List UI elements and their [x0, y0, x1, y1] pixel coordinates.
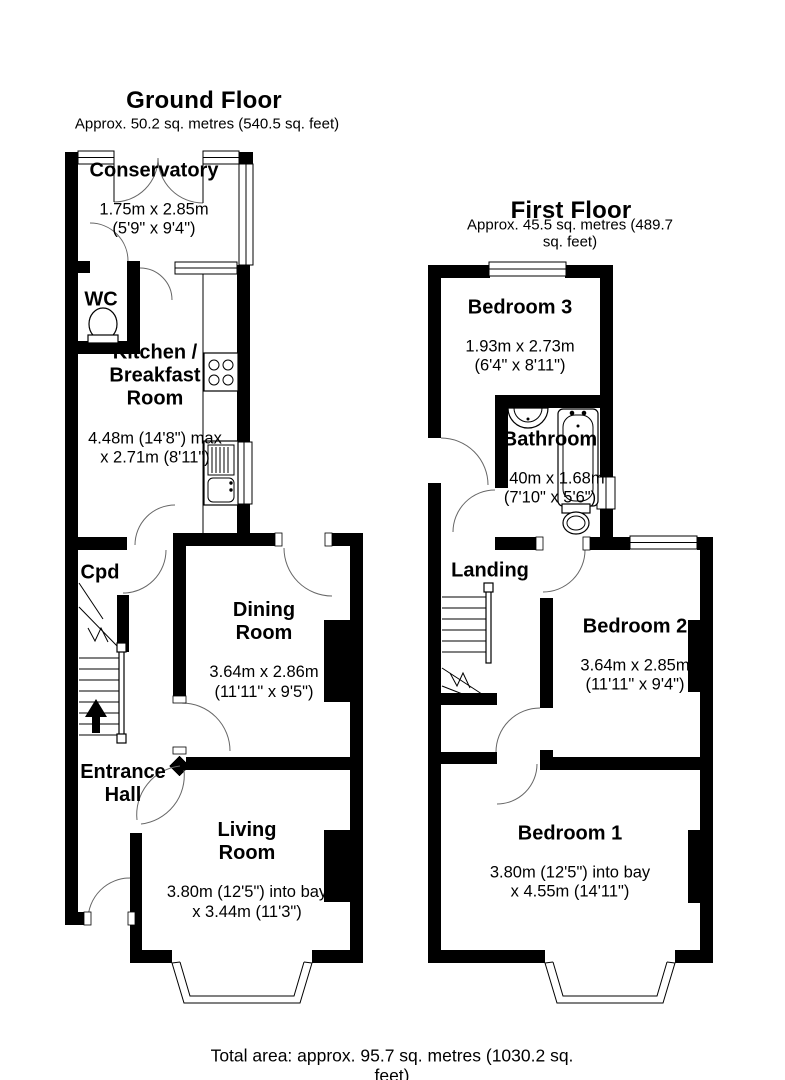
- room-dims: 1.75m x 2.85m (5'9" x 9'4"): [90, 201, 219, 239]
- bedroom2-chimney-breast: [688, 620, 713, 692]
- room-label-bedroom2: Bedroom 2 3.64m x 2.85m (11'11" x 9'4"): [580, 596, 689, 713]
- room-dims: 1.93m x 2.73m (6'4" x 8'11"): [465, 338, 574, 376]
- room-name: Bedroom 2: [580, 615, 689, 638]
- room-name: Conservatory: [90, 159, 219, 182]
- room-dims: 3.64m x 2.85m (11'11" x 9'4"): [580, 657, 689, 695]
- front-door-arc: [88, 878, 130, 920]
- room-label-living: Living Room 3.80m (12'5") into bay x 3.4…: [167, 800, 327, 940]
- first-floor-stairs: [442, 583, 493, 698]
- room-name: Dining Room: [209, 598, 318, 644]
- bay-window: [172, 962, 312, 1003]
- room-dims: 2.40m x 1.68m (7'10" x 5'6"): [495, 470, 604, 508]
- door-arc: [453, 490, 495, 532]
- room-name: Bathroom: [495, 428, 604, 451]
- first-floor-subtitle: Approx. 45.5 sq. metres (489.7 sq. feet): [463, 217, 678, 252]
- room-name: Bedroom 3: [465, 296, 574, 319]
- room-label-bedroom3: Bedroom 3 1.93m x 2.73m (6'4" x 8'11"): [465, 277, 574, 394]
- room-label-landing: Landing: [451, 559, 529, 582]
- room-label-cpd: Cpd: [81, 561, 120, 584]
- door-arc: [140, 268, 172, 300]
- stair-break-line: [88, 628, 108, 642]
- room-name: Bedroom 1: [490, 822, 650, 845]
- room-label-bathroom: Bathroom 2.40m x 1.68m (7'10" x 5'6"): [495, 409, 604, 526]
- door-arc: [497, 764, 537, 804]
- door-arc: [496, 708, 540, 752]
- room-name: Kitchen / Breakfast Room: [88, 341, 222, 411]
- door-arc: [441, 438, 488, 485]
- room-label-conservatory: Conservatory 1.75m x 2.85m (5'9" x 9'4"): [90, 140, 219, 257]
- window: [489, 262, 566, 276]
- dining-chimney-breast: [324, 620, 350, 702]
- room-label-entrance-hall: Entrance Hall: [80, 761, 166, 807]
- bedroom1-chimney-breast: [688, 830, 713, 903]
- total-area-text: Total area: approx. 95.7 sq. metres (103…: [196, 1046, 589, 1080]
- ground-floor-title: Ground Floor: [126, 87, 282, 115]
- floorplan-image: Ground Floor Approx. 50.2 sq. metres (54…: [0, 0, 785, 1080]
- room-label-dining: Dining Room 3.64m x 2.86m (11'11" x 9'5"…: [209, 580, 318, 720]
- window: [239, 164, 253, 265]
- room-label-wc: WC: [84, 288, 117, 311]
- room-label-bedroom1: Bedroom 1 3.80m (12'5") into bay x 4.55m…: [490, 803, 650, 920]
- window: [630, 536, 697, 549]
- door-arc: [123, 550, 166, 593]
- up-arrow-icon: [85, 699, 107, 733]
- ground-floor-subtitle: Approx. 50.2 sq. metres (540.5 sq. feet): [75, 115, 339, 132]
- bay-window: [545, 962, 675, 1003]
- room-name: Living Room: [167, 818, 327, 864]
- door-arc: [543, 550, 585, 592]
- window: [175, 262, 237, 274]
- room-label-kitchen: Kitchen / Breakfast Room 4.48m (14'8") m…: [88, 322, 222, 485]
- living-chimney-breast: [324, 830, 350, 902]
- room-dims: 4.48m (14'8") max x 2.71m (8'11"): [88, 429, 222, 467]
- door-arc: [135, 505, 175, 545]
- room-dims: 3.64m x 2.86m (11'11" x 9'5"): [209, 663, 318, 701]
- room-dims: 3.80m (12'5") into bay x 4.55m (14'11"): [490, 864, 650, 902]
- room-dims: 3.80m (12'5") into bay x 3.44m (11'3"): [167, 883, 327, 921]
